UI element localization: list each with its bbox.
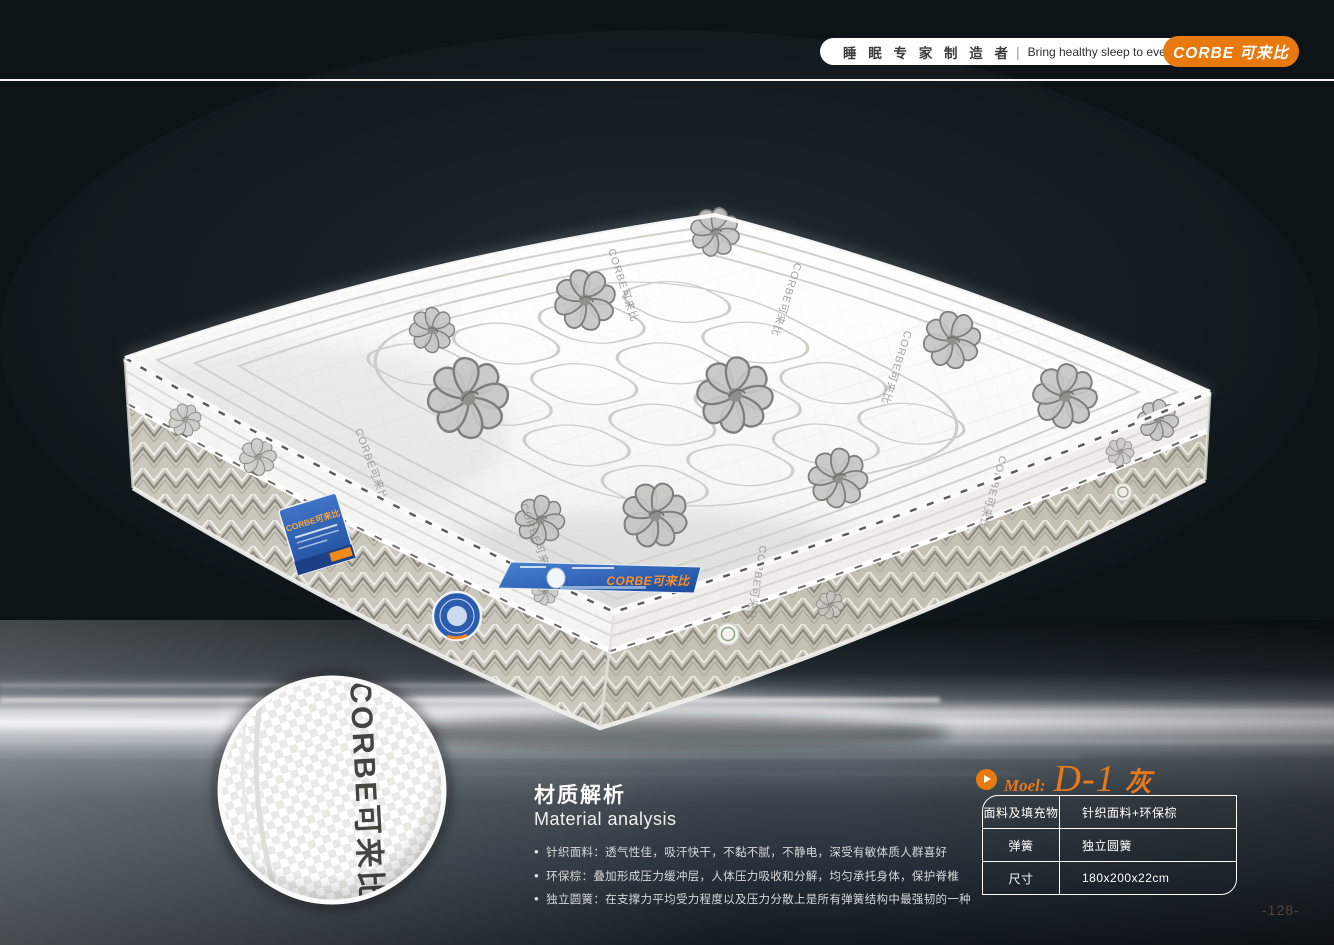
material-bullet-list: 针织面料：透气性佳，吸汗快干，不黏不腻，不静电，深受有敏体质人群喜好 环保棕：叠… — [534, 841, 1004, 912]
material-title-cn: 材质解析 — [534, 784, 1004, 808]
air-vent — [717, 623, 739, 645]
slogan-divider: | — [1016, 44, 1020, 60]
page-number: -128- — [1262, 902, 1300, 918]
header-rule — [0, 79, 1334, 81]
spec-label: 尺寸 — [983, 862, 1060, 894]
spec-label: 面料及填充物 — [983, 796, 1060, 828]
spec-value: 180x200x22cm — [1060, 862, 1169, 894]
brand-ribbon-label: CORBE可来比 — [498, 562, 701, 593]
model-variant: 灰 — [1125, 760, 1152, 799]
material-bullet: 环保棕：叠加形成压力缓冲层，人体压力吸收和分解，均匀承托身体，保护脊椎 — [534, 865, 1004, 889]
material-bullet: 独立圆簧：在支撑力平均受力程度以及压力分散上是所有弹簧结构中最强韧的一种 — [534, 888, 1004, 912]
model-label: Moel: — [1004, 776, 1046, 796]
table-row: 尺寸 180x200x22cm — [983, 862, 1236, 894]
material-bullet: 针织面料：透气性佳，吸汗快干，不黏不腻，不静电，深受有敏体质人群喜好 — [534, 841, 1004, 865]
brand-round-badge — [433, 592, 481, 640]
svg-text:CORBE可来比: CORBE可来比 — [606, 574, 691, 588]
air-vent — [1114, 483, 1132, 501]
spec-label: 弹簧 — [983, 829, 1060, 861]
arrow-icon — [976, 769, 997, 790]
spec-value: 针织面料+环保棕 — [1060, 796, 1177, 828]
spec-value: 独立圆簧 — [1060, 829, 1132, 861]
catalog-page: CORBE可来比 CORBE可来比 CORBE可来比 CORBE可来比 CORB… — [0, 0, 1334, 945]
material-title-en: Material analysis — [534, 808, 1004, 830]
material-analysis-section: 材质解析 Material analysis 针织面料：透气性佳，吸汗快干，不黏… — [534, 784, 1004, 912]
table-row: 面料及填充物 针织面料+环保棕 — [983, 796, 1236, 829]
spec-table: 面料及填充物 针织面料+环保棕 弹簧 独立圆簧 尺寸 180x200x22cm — [982, 795, 1237, 895]
brand-logo-badge: CORBE 可来比 — [1163, 36, 1299, 67]
brand-logo-text: CORBE 可来比 — [1173, 41, 1289, 63]
header-slogan-bar: 睡 眠 专 家 制 造 者 | Bring healthy sleep to e… — [820, 38, 1298, 65]
table-row: 弹簧 独立圆簧 — [983, 829, 1236, 862]
slogan-chinese: 睡 眠 专 家 制 造 者 — [843, 42, 1012, 62]
